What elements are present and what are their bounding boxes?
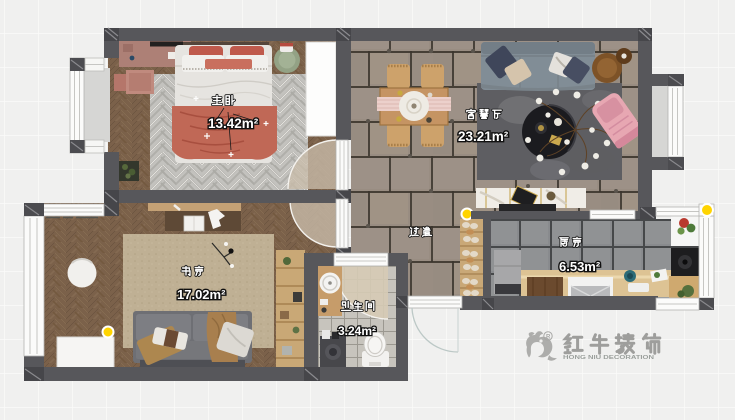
svg-text:17.02m²: 17.02m²: [177, 287, 226, 302]
svg-text:R: R: [546, 335, 551, 341]
svg-text:23.21m²: 23.21m²: [458, 129, 509, 144]
svg-text:13.42m²: 13.42m²: [208, 116, 259, 131]
svg-text:HONG NIU DECORATION: HONG NIU DECORATION: [563, 355, 654, 361]
svg-text:6.53m²: 6.53m²: [559, 259, 601, 274]
svg-text:3.24m²: 3.24m²: [338, 324, 376, 338]
